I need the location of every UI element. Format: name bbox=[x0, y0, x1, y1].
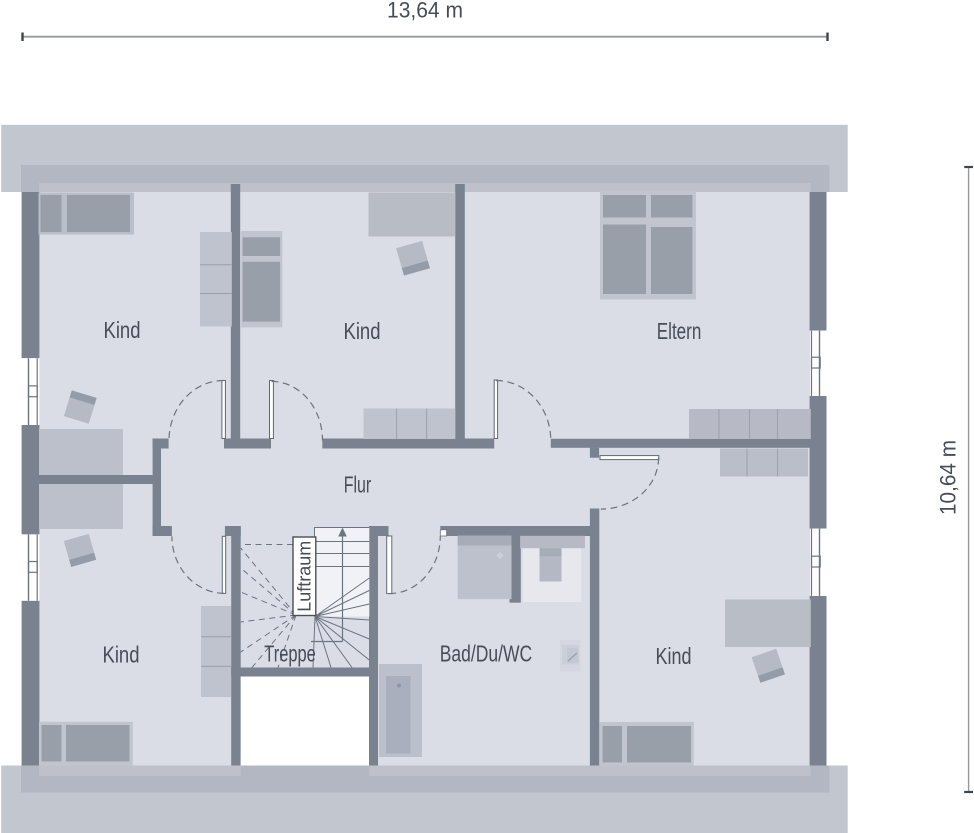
svg-text:10,64 m: 10,64 m bbox=[936, 440, 961, 515]
svg-text:Kind: Kind bbox=[104, 317, 141, 343]
svg-text:Flur: Flur bbox=[344, 472, 372, 498]
svg-text:Luftraum: Luftraum bbox=[295, 541, 315, 612]
svg-text:Treppe: Treppe bbox=[264, 641, 316, 667]
svg-text:Kind: Kind bbox=[656, 643, 692, 669]
svg-text:Kind: Kind bbox=[103, 642, 140, 668]
svg-text:Kind: Kind bbox=[344, 318, 381, 344]
svg-text:13,64 m: 13,64 m bbox=[387, 0, 463, 23]
svg-text:Eltern: Eltern bbox=[657, 318, 702, 344]
svg-text:Bad/Du/WC: Bad/Du/WC bbox=[440, 641, 533, 667]
